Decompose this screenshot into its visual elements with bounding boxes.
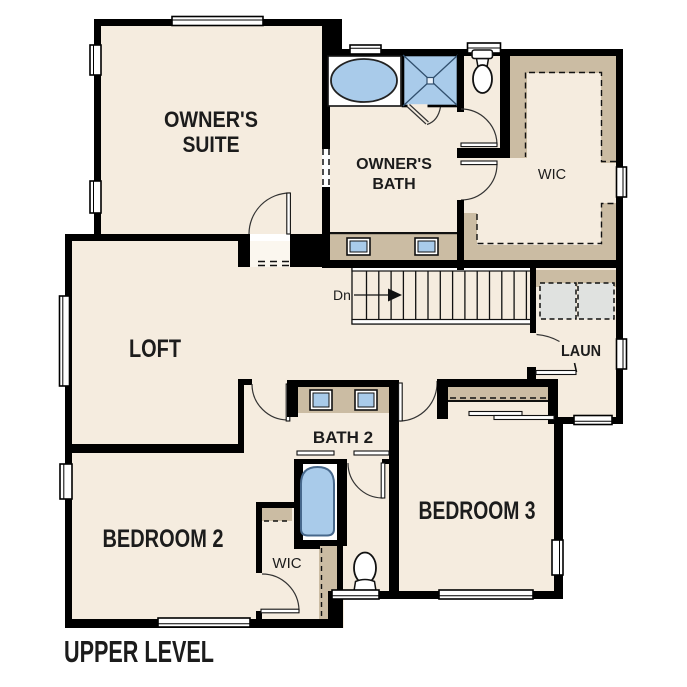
svg-text:BEDROOM 3: BEDROOM 3: [419, 497, 536, 525]
svg-text:BATH: BATH: [372, 176, 415, 193]
svg-text:SUITE: SUITE: [183, 132, 240, 157]
svg-text:UPPER LEVEL: UPPER LEVEL: [64, 634, 214, 669]
svg-text:OWNER'S: OWNER'S: [356, 156, 432, 173]
svg-text:BATH 2: BATH 2: [313, 428, 373, 447]
svg-text:Dn: Dn: [333, 287, 351, 303]
svg-text:LOFT: LOFT: [129, 335, 181, 363]
svg-text:OWNER'S: OWNER'S: [164, 107, 258, 132]
svg-text:LAUN: LAUN: [561, 343, 601, 360]
svg-text:WIC: WIC: [272, 555, 301, 572]
svg-text:BEDROOM 2: BEDROOM 2: [103, 525, 224, 553]
svg-text:WIC: WIC: [538, 167, 566, 183]
